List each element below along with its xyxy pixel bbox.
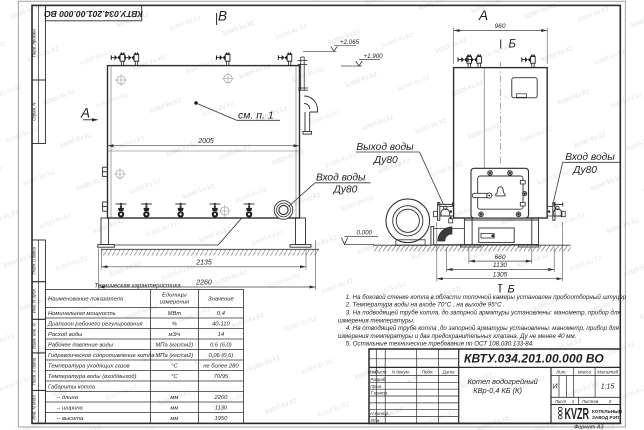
svg-text:Масса: Масса [578, 370, 592, 375]
svg-text:не более 280: не более 280 [203, 364, 239, 370]
svg-text:В: В [218, 9, 227, 24]
svg-text:Рабочее давление воды: Рабочее давление воды [48, 343, 114, 349]
svg-text:Подп.: Подп. [422, 370, 434, 375]
svg-text:KVZR: KVZR [565, 406, 590, 423]
svg-text:N докум.: N докум. [392, 370, 410, 375]
svg-text:– ширина: – ширина [56, 406, 84, 412]
svg-text:2. Температура воды на входе: 2. Температура воды на входе 70°С , на в… [345, 302, 505, 309]
svg-text:%: % [172, 322, 177, 328]
svg-text:см. п. 1: см. п. 1 [238, 109, 274, 121]
svg-text:Котел водогрейный: Котел водогрейный [467, 377, 537, 386]
svg-text:0,06 (0,6): 0,06 (0,6) [208, 353, 233, 359]
svg-text:1950: 1950 [214, 416, 228, 422]
svg-text:Т.контр.: Т.контр. [370, 391, 388, 396]
svg-text:+2.065: +2.065 [340, 39, 360, 46]
svg-text:мм: мм [170, 395, 178, 401]
svg-text:мм: мм [170, 406, 178, 412]
svg-text:1130: 1130 [493, 262, 508, 269]
svg-text:Единицы: Единицы [162, 293, 187, 299]
svg-text:измерения температуры.: измерения температуры. [338, 317, 415, 324]
svg-text:+1.900: +1.900 [364, 53, 384, 60]
svg-text:Формат А3: Формат А3 [574, 424, 604, 430]
svg-text:ЗАВОД РЭП: ЗАВОД РЭП [592, 415, 619, 420]
svg-text:Лист: Лист [554, 399, 567, 404]
svg-text:0.000: 0.000 [357, 229, 373, 236]
svg-text:2005: 2005 [197, 138, 214, 145]
svg-text:КОТЕЛЬНЫЙ: КОТЕЛЬНЫЙ [592, 407, 622, 414]
svg-text:Диапазон рабочего регулировани: Диапазон рабочего регулирования [47, 322, 143, 328]
svg-text:Листов: Листов [581, 399, 599, 404]
svg-text:Техническая характеристика: Техническая характеристика [94, 283, 181, 290]
svg-text:измерения температуры и два пр: измерения температуры и два предохраните… [338, 333, 577, 340]
svg-text:Б: Б [509, 39, 517, 51]
svg-text:Инв. N дубл.: Инв. N дубл. [32, 288, 37, 313]
svg-text:Наименование показателя: Наименование показателя [48, 297, 124, 303]
svg-text:40-110: 40-110 [212, 322, 230, 328]
svg-text:Подп. и дата: Подп. и дата [32, 357, 37, 385]
svg-text:°С: °С [171, 374, 178, 380]
svg-text:Утв.: Утв. [370, 418, 380, 423]
svg-text:Пров.: Пров. [370, 384, 382, 389]
svg-text:МПа (кгс/см2): МПа (кгс/см2) [155, 343, 193, 349]
svg-text:Дата: Дата [442, 370, 455, 375]
svg-text:1:15: 1:15 [601, 384, 615, 391]
svg-text:1. На боковой стенке котла в: 1. На боковой стенке котла в области топ… [346, 294, 627, 301]
svg-text:960: 960 [494, 23, 505, 30]
svg-text:Габариты котла: Габариты котла [48, 385, 96, 391]
svg-text:Вход воды: Вход воды [316, 173, 366, 184]
svg-text:Лит.: Лит. [555, 370, 567, 375]
svg-text:5. Остальные технические треб: 5. Остальные технические требования по О… [346, 341, 534, 348]
svg-text:660: 660 [494, 254, 505, 261]
svg-text:1130: 1130 [215, 406, 228, 412]
svg-text:2260: 2260 [213, 395, 228, 401]
svg-text:Масштаб: Масштаб [597, 370, 618, 375]
svg-text:Ду80: Ду80 [333, 184, 358, 195]
svg-text:Гидравлическое сопротивление к: Гидравлическое сопротивление котла [48, 353, 155, 359]
svg-text:МВт: МВт [168, 311, 182, 317]
svg-text:Температура воды (вход/выход): Температура воды (вход/выход) [48, 374, 137, 380]
svg-text:Выход воды: Выход воды [356, 142, 414, 153]
svg-text:А: А [478, 8, 488, 23]
svg-text:2260: 2260 [195, 280, 212, 287]
svg-text:Разраб.: Разраб. [370, 377, 386, 382]
svg-text:мм: мм [170, 416, 178, 422]
svg-text:Справ. N: Справ. N [32, 102, 37, 121]
svg-text:Подп. и дата: Подп. и дата [32, 247, 37, 275]
svg-text:0,6 (6,0): 0,6 (6,0) [210, 343, 232, 349]
svg-text:Инв. N подл.: Инв. N подл. [32, 394, 37, 420]
svg-text:Н.контр.: Н.контр. [370, 411, 389, 416]
svg-text:Б: Б [508, 284, 515, 296]
svg-text:Взам. инв. N: Взам. инв. N [32, 322, 37, 348]
svg-text:70/95: 70/95 [214, 374, 229, 380]
svg-text:Ду80: Ду80 [572, 165, 597, 176]
svg-text:измерения: измерения [160, 300, 190, 306]
svg-text:– высота: – высота [56, 416, 84, 422]
svg-text:– длина: – длина [56, 395, 79, 401]
svg-text:Номинальная мощность: Номинальная мощность [48, 311, 116, 317]
svg-text:м3/ч: м3/ч [168, 332, 180, 338]
svg-text:МПа (кгс/см2): МПа (кгс/см2) [155, 353, 193, 359]
svg-text:0,4: 0,4 [217, 311, 225, 317]
svg-text:1305: 1305 [493, 271, 508, 278]
svg-text:Лист: Лист [374, 370, 387, 375]
svg-text:А: А [80, 106, 90, 121]
svg-text:2135: 2135 [195, 259, 212, 266]
svg-text:КВТУ.034.201.00.000 ВО: КВТУ.034.201.00.000 ВО [464, 352, 604, 366]
svg-text:Ду80: Ду80 [373, 155, 398, 166]
svg-text:°С: °С [171, 364, 178, 370]
svg-text:3. На подводящей трубе котла,: 3. На подводящей трубе котла, до запорно… [346, 310, 622, 317]
svg-text:КВТУ.034.201.00.000 ВО: КВТУ.034.201.00.000 ВО [44, 9, 143, 19]
svg-text:4. На отводящей трубе котла ,: 4. На отводящей трубе котла ,до запорной… [346, 325, 620, 332]
svg-text:2: 2 [608, 399, 612, 404]
svg-text:Значение: Значение [208, 297, 235, 303]
svg-text:Перв. примен.: Перв. примен. [32, 28, 37, 57]
svg-text:Расход воды: Расход воды [48, 332, 83, 338]
svg-text:Температура уходящих газов: Температура уходящих газов [48, 364, 130, 370]
svg-text:14: 14 [218, 332, 224, 338]
svg-text:КВр-0,4 КБ (К): КВр-0,4 КБ (К) [473, 386, 522, 395]
svg-text:Вход воды: Вход воды [565, 152, 615, 163]
